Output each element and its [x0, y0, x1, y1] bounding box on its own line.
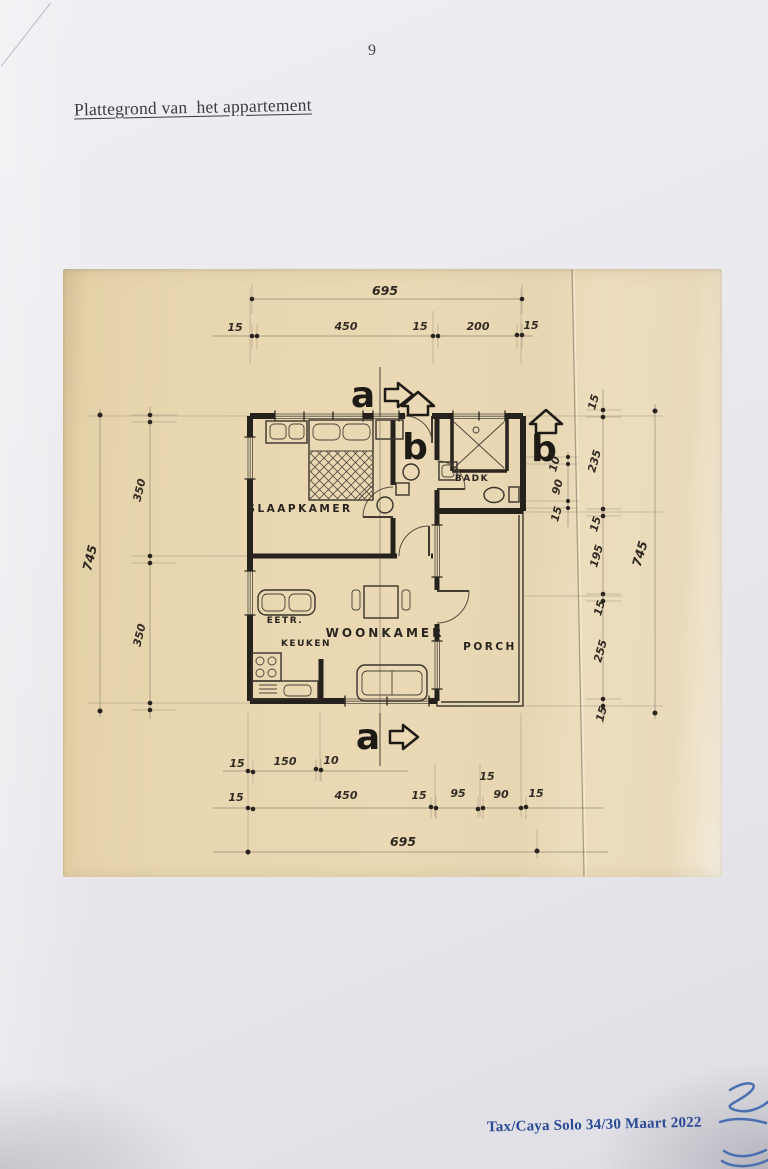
dim-label: 15	[593, 705, 610, 724]
room-label-keuken: KEUKEN	[281, 639, 331, 649]
section-arrow-right-icon	[385, 383, 413, 407]
room-label-woonkamer: WOONKAMER	[326, 626, 445, 640]
floorplan-scan: a a b b SLAAPKAMER BADK EETR. KEUKEN WOO…	[63, 269, 722, 877]
page-number: 9	[368, 42, 376, 60]
dim-label: 350	[131, 622, 149, 648]
dim-label: 90	[493, 788, 509, 801]
dim-label: 95	[450, 787, 466, 800]
dimension-top: 695 15 450 15 200 15	[227, 283, 539, 334]
room-label-badk: BADK	[455, 474, 489, 484]
room-label-slaapkamer: SLAAPKAMER	[247, 503, 352, 515]
section-label-b-left: b	[402, 427, 428, 468]
furniture	[252, 420, 519, 701]
dim-label: 450	[334, 320, 358, 333]
room-label-eetr: EETR.	[267, 616, 303, 626]
shower	[473, 427, 479, 433]
dim-label: 15	[228, 791, 244, 804]
toilet	[484, 487, 519, 503]
dim-label: 200	[467, 320, 490, 333]
scan-crease-highlight	[574, 269, 586, 877]
stove	[252, 653, 281, 681]
sofa	[357, 665, 427, 701]
window	[432, 525, 443, 577]
window	[245, 571, 256, 615]
dim-label: 15	[548, 505, 565, 524]
dim-label: 255	[591, 638, 610, 664]
dimension-right: 745 15 235 15 195 15 255 15 10 90 15	[546, 393, 650, 724]
room-labels: SLAAPKAMER BADK EETR. KEUKEN WOONKAMER P…	[247, 474, 516, 653]
dim-label: 15	[585, 393, 602, 412]
window	[245, 437, 256, 479]
section-arrow-up-icon	[402, 392, 434, 415]
dim-label: 150	[274, 755, 297, 768]
dim-label: 90	[549, 478, 566, 497]
dim-label: 15	[412, 320, 428, 333]
dim-label: 745	[79, 543, 100, 572]
section-label-a-bottom: a	[356, 717, 380, 758]
dim-label: 15	[523, 319, 539, 332]
dim-label: 15	[479, 770, 495, 783]
page-title: Plattegrond van het appartement	[74, 95, 312, 121]
bed	[309, 420, 373, 500]
dim-label: 695	[390, 834, 416, 849]
signature-scribble	[690, 1078, 768, 1169]
room-label-porch: PORCH	[463, 641, 517, 653]
dim-label: 695	[372, 283, 398, 298]
dim-label: 745	[629, 539, 651, 569]
floorplan-drawing: a a b b SLAAPKAMER BADK EETR. KEUKEN WOO…	[63, 269, 722, 877]
dimension-left: 745 350 350	[79, 477, 149, 648]
scanned-document-page: { "page": { "number": "9", "title": "Pla…	[0, 0, 768, 1169]
dim-label: 15	[528, 787, 544, 800]
section-arrow-right-icon	[390, 725, 418, 749]
window	[453, 411, 505, 422]
wardrobe	[266, 421, 307, 443]
dimension-bottom: 15 150 10 15 450 15 95 15 90 15 695	[228, 754, 544, 849]
dining-table	[352, 586, 410, 618]
dim-label: 15	[229, 757, 245, 770]
dim-label: 450	[334, 789, 358, 802]
dim-label: 15	[411, 789, 427, 802]
porch-floor	[437, 511, 523, 706]
dimension-guides	[88, 284, 663, 859]
window	[432, 641, 443, 689]
dim-label: 235	[585, 448, 604, 474]
footer-note: Tax/Caya Solo 34/30 Maart 2022	[487, 1115, 702, 1137]
page-fold-line	[1, 3, 51, 67]
scan-crease-line	[572, 269, 584, 877]
kitchen-counter	[252, 681, 318, 699]
section-label-a-top: a	[351, 375, 375, 416]
dim-label: 10	[323, 754, 339, 767]
dim-label: 15	[227, 321, 243, 334]
dim-label: 350	[131, 477, 149, 503]
floorplan-walls	[250, 416, 523, 706]
dining-bench	[258, 590, 315, 615]
